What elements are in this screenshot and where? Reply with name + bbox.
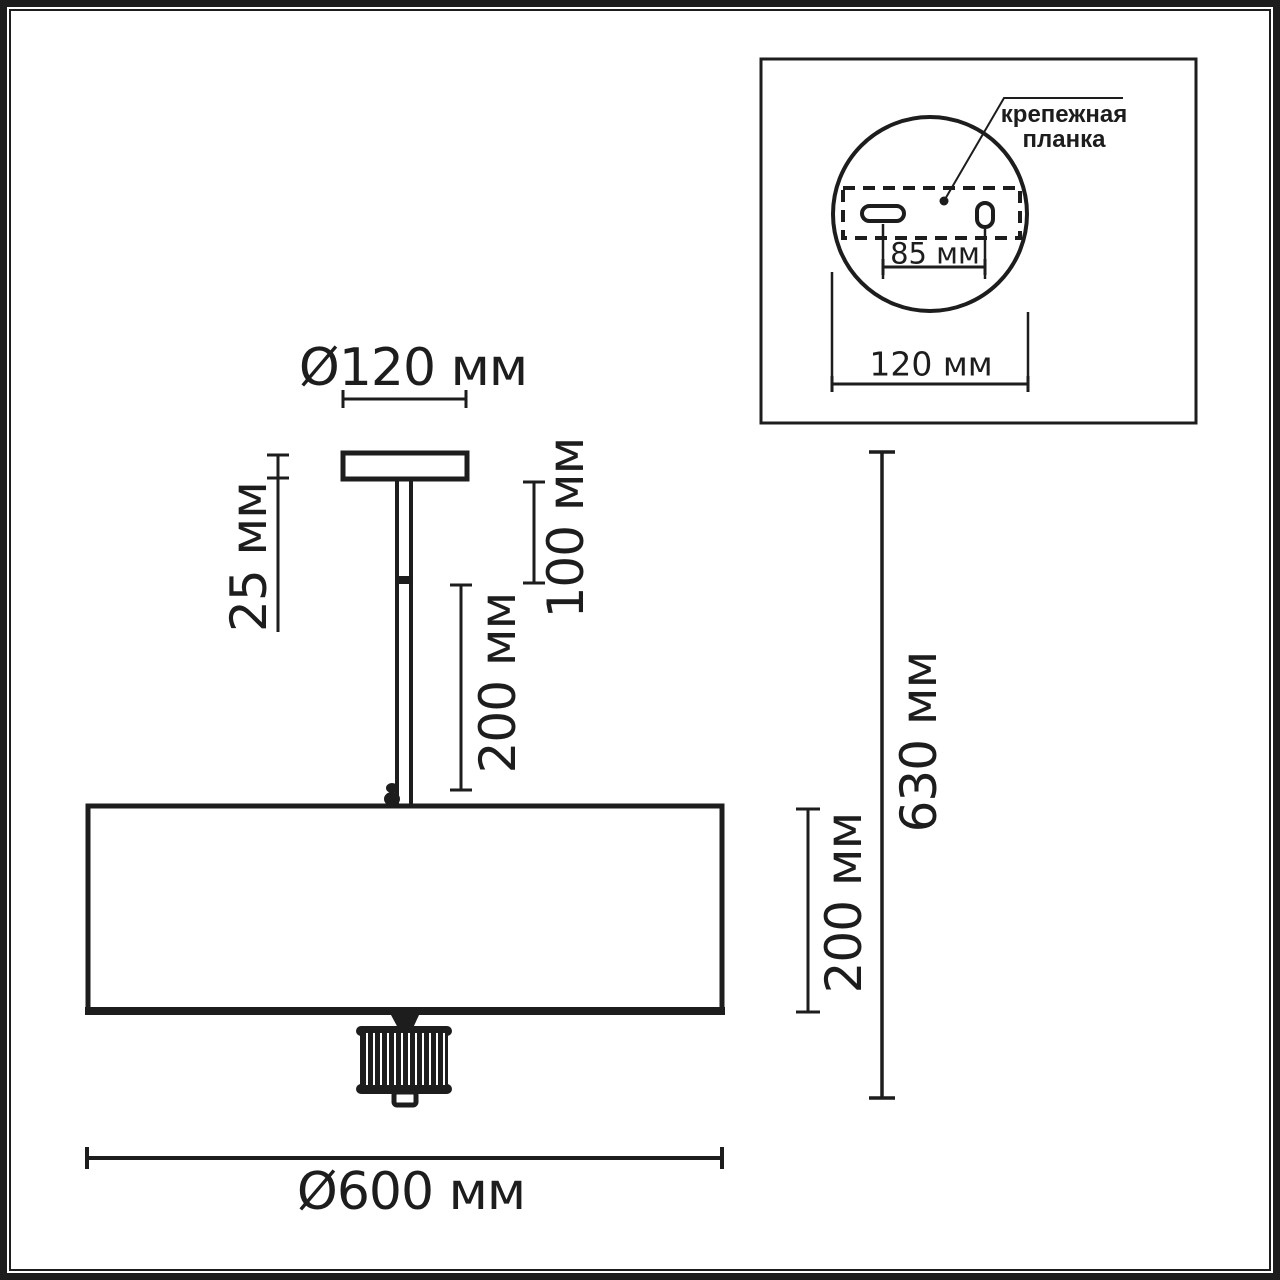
canopy-diameter-dim-label: Ø120 мм	[299, 342, 527, 394]
ribbed-finial	[356, 1026, 452, 1105]
dimension-lines	[87, 390, 895, 1169]
mounting-bracket-callout-label: крепежная планка	[984, 102, 1144, 152]
stem-knob	[384, 783, 400, 806]
lamp-front-view	[85, 453, 725, 1105]
finial-bottom-tab	[394, 1092, 416, 1105]
shade-diameter-dim-label: Ø600 мм	[297, 1166, 525, 1218]
shade-height-dim-label: 200 мм	[819, 813, 869, 994]
lamp-dimension-drawing	[0, 0, 1280, 1280]
stem-upper-dim-label: 100 мм	[541, 438, 591, 619]
stem-rod	[397, 470, 411, 810]
stem-lower-dim-label: 200 мм	[473, 593, 523, 774]
plate-diameter-dim-label: 120 мм	[869, 348, 992, 381]
total-height-dim-label: 630 мм	[894, 652, 944, 833]
slot-hole-right	[977, 203, 993, 227]
stem-joint	[395, 576, 413, 584]
hole-spacing-dim-label: 85 мм	[890, 240, 980, 269]
canopy-height-dim-label: 25 мм	[224, 482, 274, 632]
ceiling-canopy	[343, 453, 467, 479]
slot-hole-left	[862, 206, 904, 221]
technical-drawing-page: Ø120 мм 25 мм 100 мм 200 мм 630 мм 200 м…	[0, 0, 1280, 1280]
drum-shade	[88, 806, 722, 1011]
